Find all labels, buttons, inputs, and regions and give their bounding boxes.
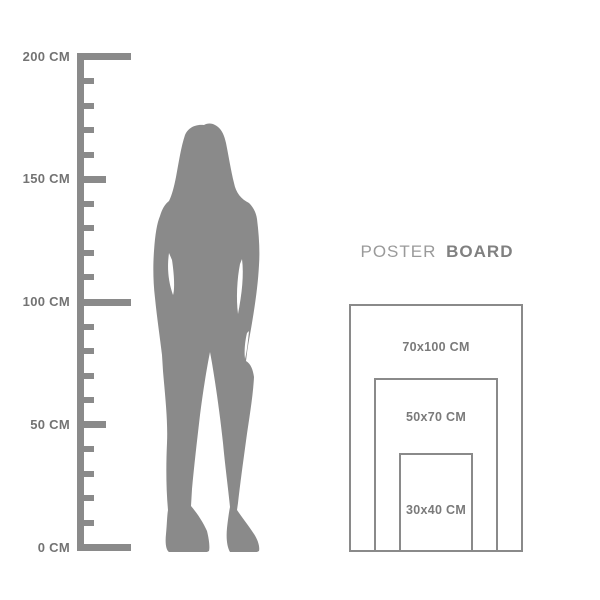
ruler-tick-major	[84, 544, 131, 551]
ruler-tick-minor	[84, 471, 94, 477]
ruler-tick-minor	[84, 127, 94, 133]
ruler-tick-minor	[84, 103, 94, 109]
ruler-label: 200 CM	[0, 49, 70, 65]
ruler-tick-mid	[84, 421, 106, 428]
ruler-label: 0 CM	[0, 540, 70, 556]
female-silhouette	[152, 123, 268, 553]
ruler-tick-minor	[84, 78, 94, 84]
poster-board-title-bold: BOARD	[446, 242, 513, 261]
ruler-label: 100 CM	[0, 294, 70, 310]
ruler-bar	[77, 53, 84, 551]
ruler-tick-minor	[84, 520, 94, 526]
ruler-tick-minor	[84, 446, 94, 452]
ruler-tick-minor	[84, 373, 94, 379]
ruler-tick-minor	[84, 152, 94, 158]
ruler-tick-major	[84, 299, 131, 306]
ruler-label: 150 CM	[0, 171, 70, 187]
ruler-tick-mid	[84, 176, 106, 183]
poster-board-title-regular: POSTER	[361, 242, 437, 261]
size-label: 30x40 CM	[366, 502, 506, 518]
size-label: 50x70 CM	[366, 409, 506, 425]
ruler-tick-minor	[84, 397, 94, 403]
ruler-tick-minor	[84, 274, 94, 280]
ruler-tick-minor	[84, 324, 94, 330]
ruler-tick-minor	[84, 225, 94, 231]
ruler-tick-minor	[84, 250, 94, 256]
ruler-tick-minor	[84, 348, 94, 354]
size-label: 70x100 CM	[366, 339, 506, 355]
poster-board-title: POSTER BOARD	[287, 242, 587, 262]
ruler-label: 50 CM	[0, 417, 70, 433]
size-guide-diagram: 200 CM150 CM100 CM50 CM0 CM POSTER BOARD…	[0, 0, 600, 600]
ruler-tick-major	[84, 53, 131, 60]
ruler-tick-minor	[84, 495, 94, 501]
ruler-tick-minor	[84, 201, 94, 207]
